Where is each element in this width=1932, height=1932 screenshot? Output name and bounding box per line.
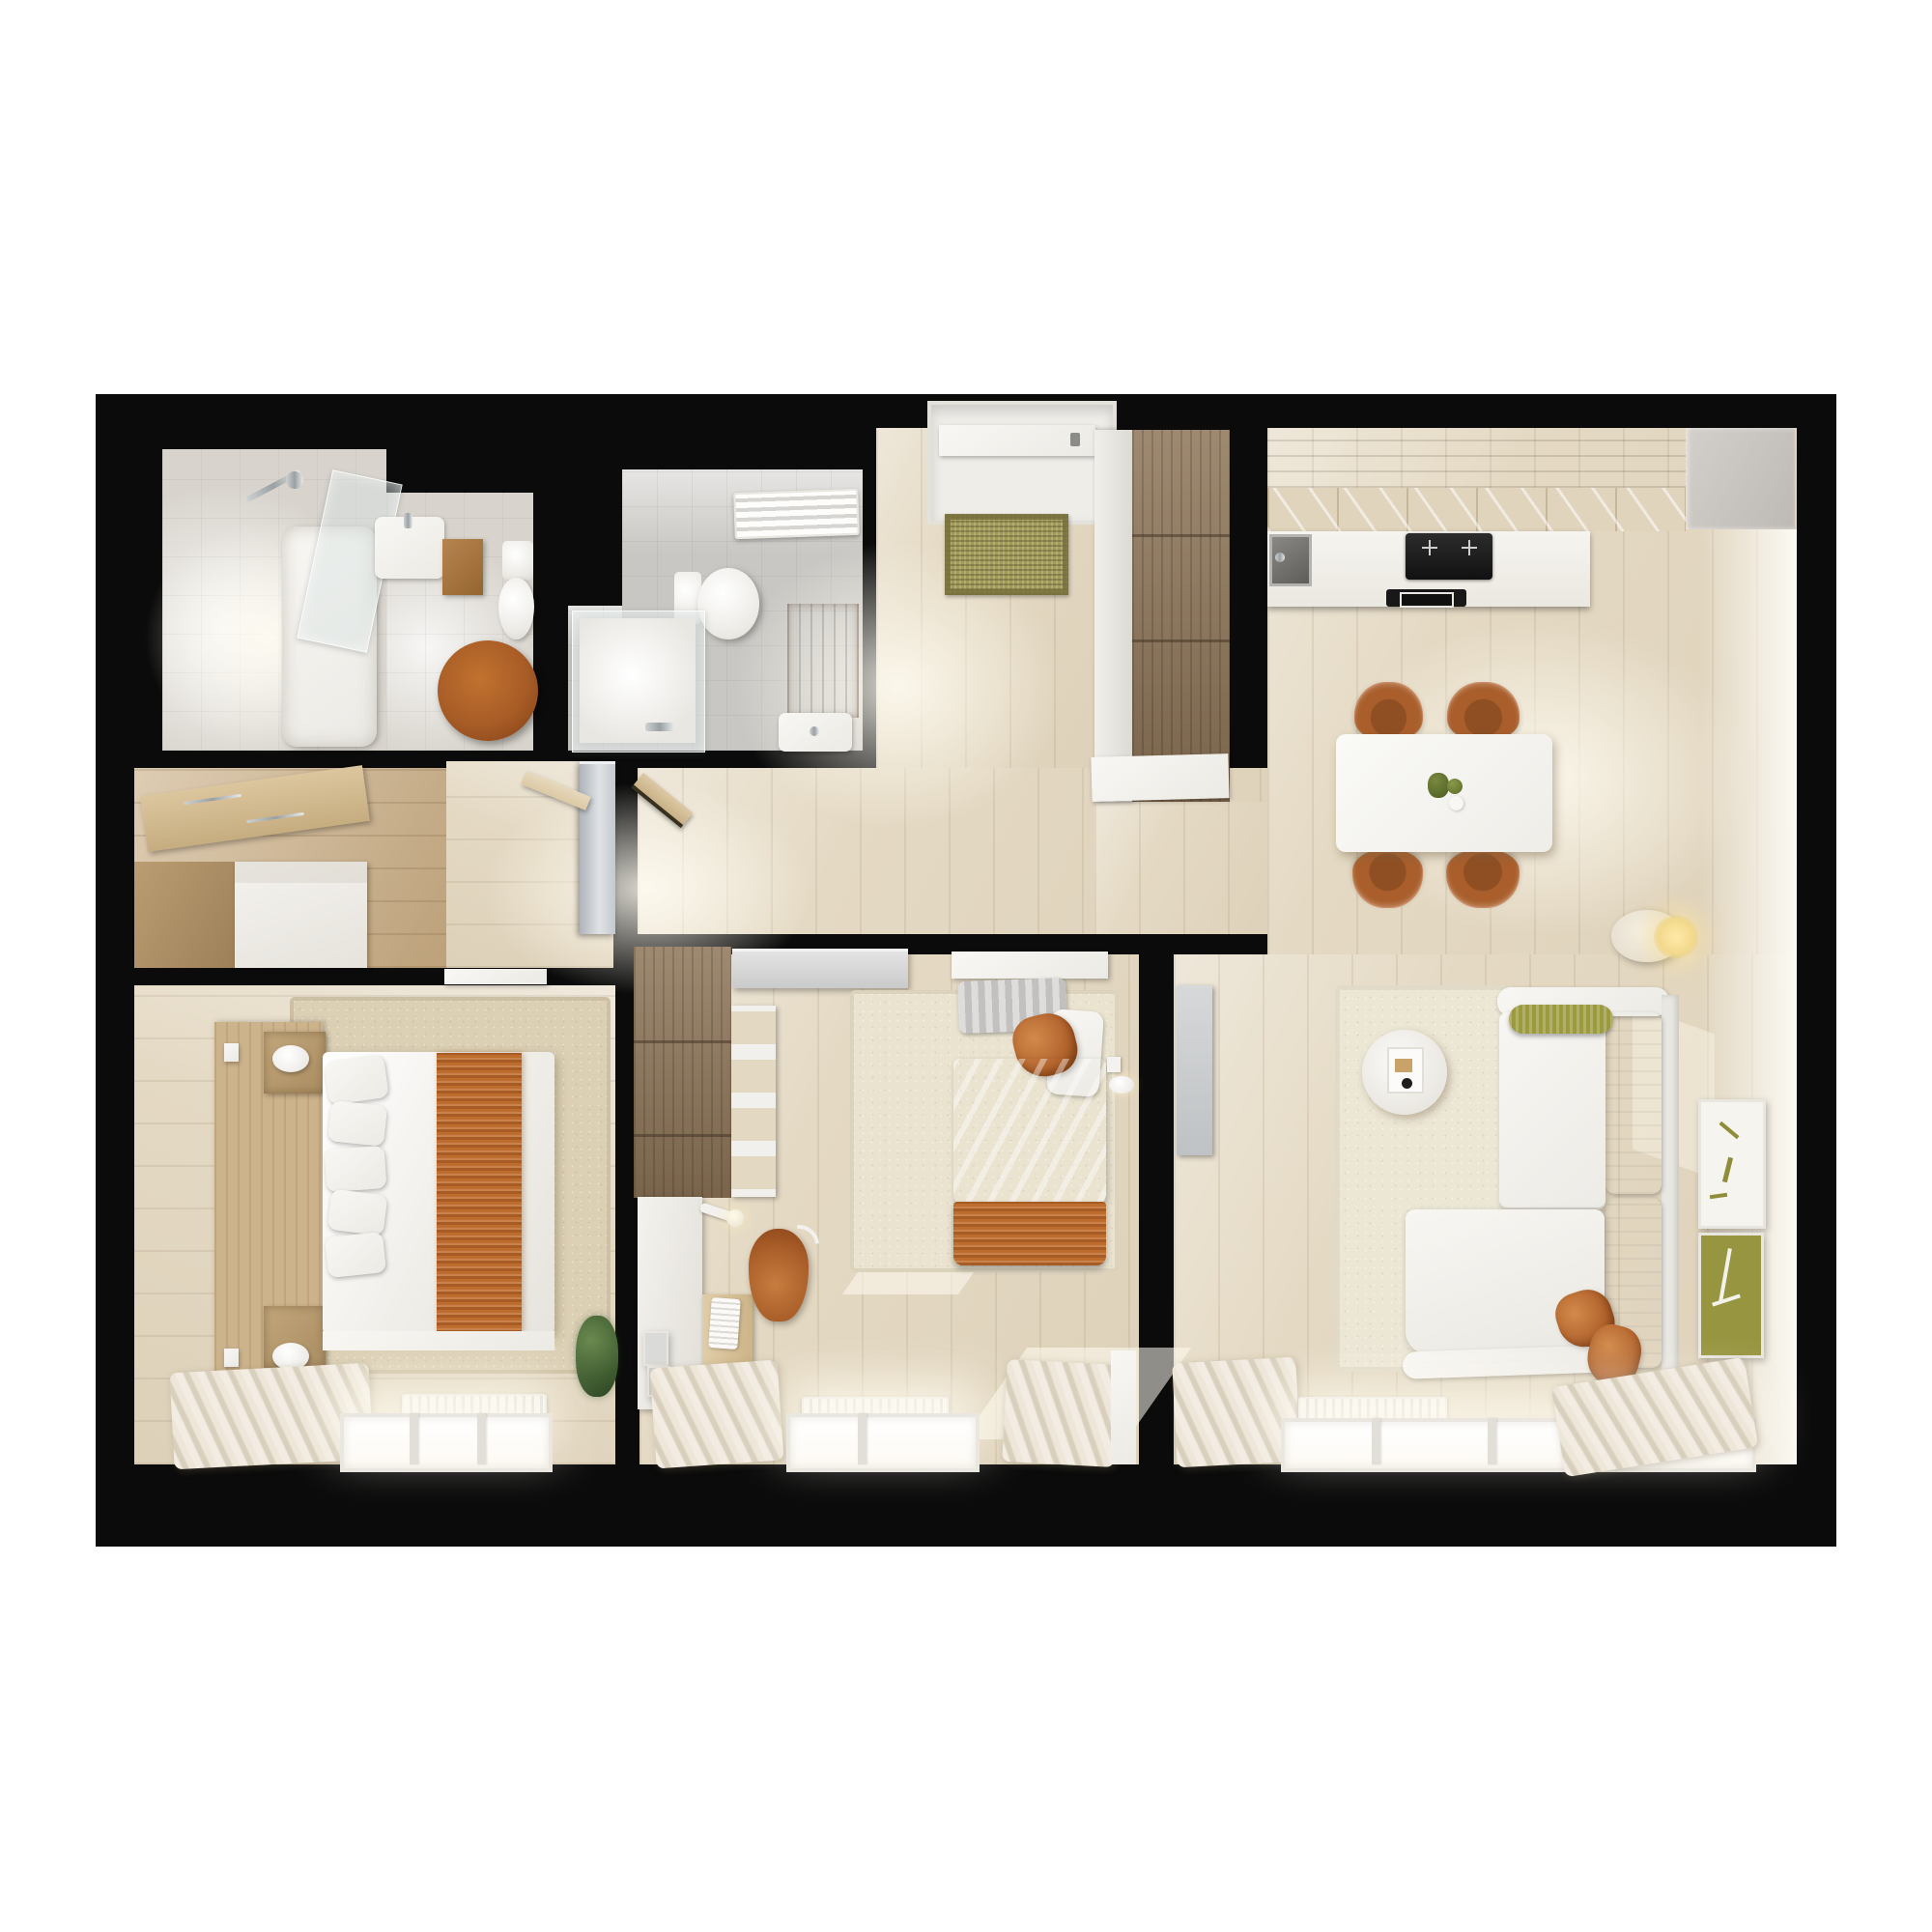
lamp-switch [224, 1043, 239, 1062]
tall-wardrobe-doors [1132, 430, 1230, 802]
hob-burner-cross-icon [1429, 540, 1431, 555]
orange-foot-blanket [953, 1202, 1106, 1265]
dining-chair [1354, 682, 1423, 740]
upper-cabinets-wood [1267, 428, 1686, 488]
curtain [650, 1360, 784, 1469]
tray-wood-box [1395, 1059, 1412, 1072]
extractor-hood-vent [1400, 592, 1454, 608]
kitchen-faucet [1275, 553, 1285, 562]
tall-wardrobe-base [1091, 753, 1229, 802]
fridge [1686, 428, 1795, 529]
green-jug [1428, 773, 1449, 798]
single-bed-headboard [952, 952, 1108, 979]
green-apple [1447, 779, 1463, 794]
sink-faucet [810, 726, 819, 736]
wall-lamp [1107, 1057, 1121, 1072]
curtain-edge-panel [1111, 1350, 1136, 1464]
pillow [327, 1189, 388, 1236]
pillow [325, 1146, 387, 1192]
window-mullion [410, 1413, 418, 1464]
window-mullion [1488, 1418, 1496, 1464]
cabinet-doors-angled [1267, 488, 1686, 531]
tray-candle [1402, 1078, 1412, 1089]
sofa-seat [1499, 1012, 1605, 1209]
round-wooden-stool [438, 640, 538, 741]
pillow [324, 1055, 389, 1105]
tall-wardrobe-side [1094, 430, 1132, 802]
pillow [327, 1100, 387, 1147]
white-bowl [1449, 796, 1463, 810]
wardrobe-seam [634, 1134, 731, 1137]
sofa-frame-edge [1662, 995, 1679, 1374]
hall-gray-cabinet [580, 761, 615, 934]
keyboard [708, 1297, 741, 1350]
hob-burner-cross-icon [1468, 540, 1470, 555]
toilet-bowl [697, 568, 759, 639]
window-mullion [858, 1413, 867, 1464]
sofa-back-cushion [1605, 1012, 1662, 1194]
hall-under-wardrobe-floor [1094, 802, 1267, 934]
entry-door-handle-icon [1070, 433, 1080, 446]
shower-valve [645, 723, 674, 731]
window [786, 1413, 980, 1472]
wardrobe-door-seam [1132, 639, 1230, 642]
plant [576, 1316, 618, 1397]
wardrobe [634, 947, 731, 1198]
olive-bolster-pillow [1509, 1005, 1613, 1034]
curtain [1002, 1359, 1119, 1467]
wall-art-light [1698, 1099, 1766, 1229]
desk-lamp-head [726, 1209, 744, 1227]
doormat [945, 514, 1068, 595]
gray-duvet [953, 1059, 1106, 1207]
closet-wardrobe-carcass [134, 862, 235, 968]
wood-counter [442, 539, 483, 595]
floorplan-canvas [0, 0, 1932, 1932]
bedroom1-door-open [444, 969, 547, 984]
pillow [325, 1232, 386, 1278]
shower-head-icon [286, 471, 303, 489]
open-shelves [731, 1006, 776, 1197]
wardrobe-seam [634, 1040, 731, 1043]
entry-door-recess [927, 401, 1117, 525]
sink-faucet [404, 513, 412, 528]
floor-lamp-glow [1654, 916, 1698, 958]
induction-hob [1406, 533, 1492, 580]
towel-radiator [733, 489, 860, 539]
window [340, 1413, 553, 1472]
reading-lamp [272, 1045, 309, 1072]
wardrobe-door-seam [1132, 534, 1230, 537]
shower-tray [580, 618, 696, 743]
toilet-tank [502, 541, 533, 580]
orange-bed-runner [437, 1053, 522, 1333]
dining-chair [1447, 682, 1520, 740]
bed-footboard [323, 1331, 554, 1350]
wood-bath-mat [787, 604, 859, 718]
window-mullion [1372, 1418, 1380, 1464]
lamp-switch [224, 1349, 239, 1367]
gray-wall-panel [1177, 985, 1212, 1155]
door-shelf-panel [732, 949, 908, 988]
wall-lamp-shade [1109, 1076, 1134, 1094]
desk-picture-frame [643, 1331, 668, 1366]
closet-wardrobe-doors [235, 862, 367, 968]
window-mullion [477, 1413, 486, 1464]
